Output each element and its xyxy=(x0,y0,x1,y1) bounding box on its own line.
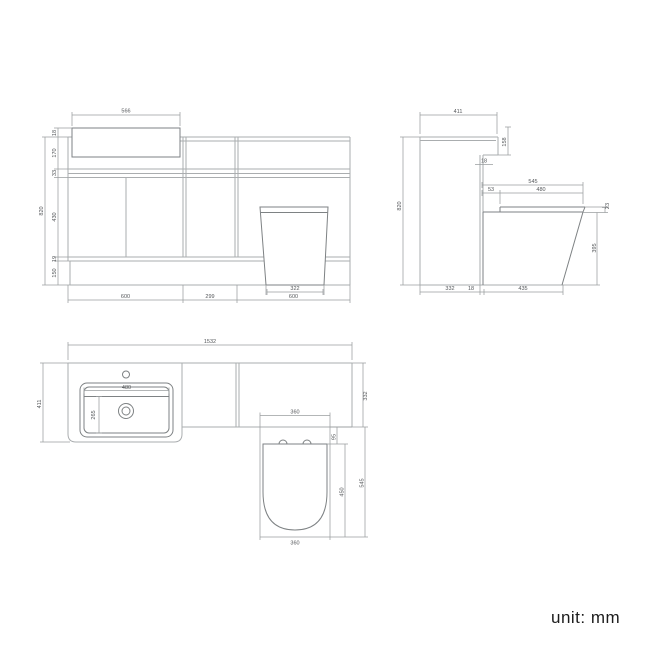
basin-front xyxy=(72,128,180,157)
dim-front-worktop-band: 33 xyxy=(52,170,58,176)
dim-side-seat-setback: 53 xyxy=(488,187,494,193)
dim-front-middle-unit-width: 299 xyxy=(205,294,214,300)
dim-front-plinth-height: 150 xyxy=(52,268,58,277)
toilet-front xyxy=(260,207,328,285)
front-elevation: 566 18 170 33 430 19 150 820 600 299 600… xyxy=(39,109,350,304)
unit-note: unit: mm xyxy=(551,608,620,628)
dim-side-pan-height: 395 xyxy=(592,243,598,252)
tap-hole xyxy=(123,371,130,378)
side-cabinet-lines xyxy=(420,137,563,285)
dim-plan-seat-width: 360 xyxy=(290,410,299,416)
dim-front-overall-height: 820 xyxy=(39,206,45,215)
waste-drain-inner xyxy=(122,407,130,415)
dim-plan-pan-width: 360 xyxy=(290,541,299,547)
side-elevation: 411 158 18 545 53 480 23 395 820 332 18 … xyxy=(397,109,611,295)
plan-run-lines xyxy=(68,363,352,442)
toilet-plan-seat xyxy=(263,440,327,530)
dim-side-pan-depth: 435 xyxy=(518,286,527,292)
technical-drawing-svg: 566 18 170 33 430 19 150 820 600 299 600… xyxy=(0,0,650,650)
dim-side-seat-length: 480 xyxy=(536,187,545,193)
dim-front-kick-gap: 19 xyxy=(52,256,58,262)
dim-front-left-unit-width: 600 xyxy=(121,294,130,300)
dim-side-seat-thickness: 23 xyxy=(605,203,611,209)
dim-front-counter-height: 170 xyxy=(52,148,58,157)
dim-plan-basin-width: 480 xyxy=(122,385,131,391)
dim-front-basin-width: 566 xyxy=(121,109,130,115)
dim-side-worktop-thickness: 18 xyxy=(481,159,487,165)
dim-side-overall-depth: 411 xyxy=(454,109,463,115)
dim-plan-wc-unit-depth: 332 xyxy=(363,391,369,400)
toilet-side xyxy=(483,207,585,285)
dim-plan-seat-offset: 95 xyxy=(332,434,338,440)
plan-view: 1532 411 480 265 332 360 95 450 545 360 xyxy=(37,339,369,547)
dim-side-back-panel: 18 xyxy=(468,286,474,292)
dim-side-end-panel-drop: 158 xyxy=(502,137,508,146)
dim-plan-basin-bowl-depth: 265 xyxy=(91,410,97,419)
basin-plan-outer xyxy=(80,383,173,437)
dim-front-toilet-base-width: 322 xyxy=(290,286,299,292)
dim-plan-pan-projection-total: 545 xyxy=(360,478,366,487)
dim-plan-vanity-depth: 411 xyxy=(37,400,43,409)
dim-front-right-unit-width: 600 xyxy=(289,294,298,300)
basin-plan-inner xyxy=(84,387,169,433)
dim-side-unit-depth: 332 xyxy=(445,286,454,292)
dim-front-basin-lip: 18 xyxy=(52,130,58,136)
dim-plan-seat-length: 450 xyxy=(340,487,346,496)
dim-front-door-height: 430 xyxy=(52,212,58,221)
waste-drain-outer xyxy=(119,404,134,419)
dim-side-overall-height: 820 xyxy=(397,201,403,210)
dim-side-pan-projection-total: 545 xyxy=(528,179,537,185)
dim-plan-overall-width: 1532 xyxy=(204,339,216,345)
plan-dim-lines xyxy=(40,342,368,540)
drawing-canvas: 566 18 170 33 430 19 150 820 600 299 600… xyxy=(0,0,650,650)
